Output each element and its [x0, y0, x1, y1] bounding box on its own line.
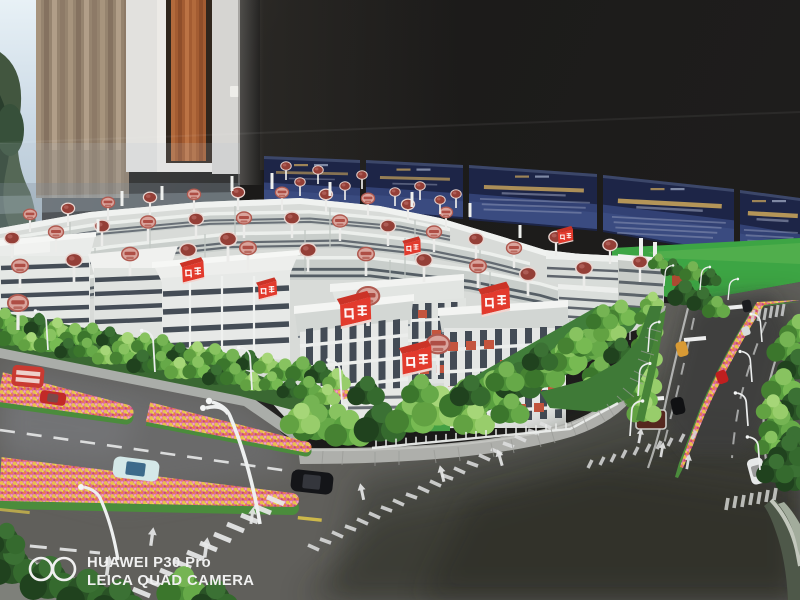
svg-text:HUAWEI P30 Pro: HUAWEI P30 Pro: [87, 555, 211, 571]
svg-text:LEICA QUAD CAMERA: LEICA QUAD CAMERA: [87, 573, 254, 589]
